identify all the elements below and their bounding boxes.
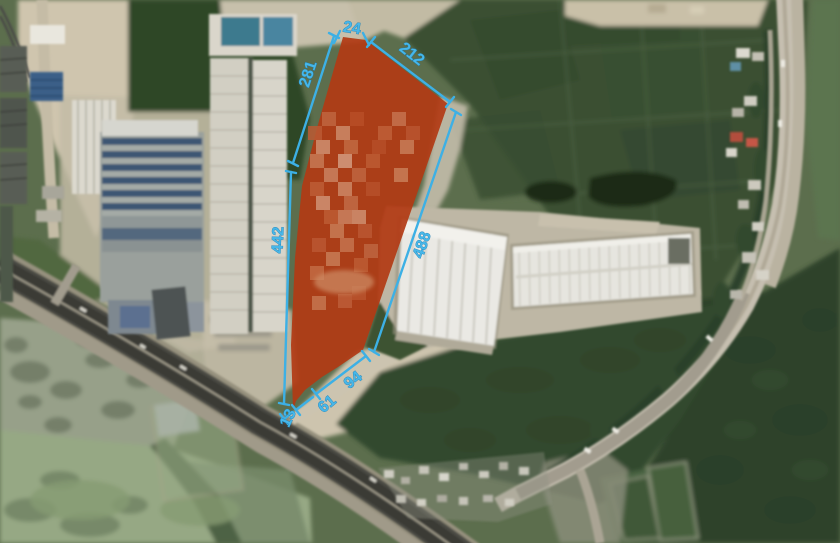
svg-text:442: 442 xyxy=(270,226,288,253)
svg-text:24: 24 xyxy=(342,19,362,39)
